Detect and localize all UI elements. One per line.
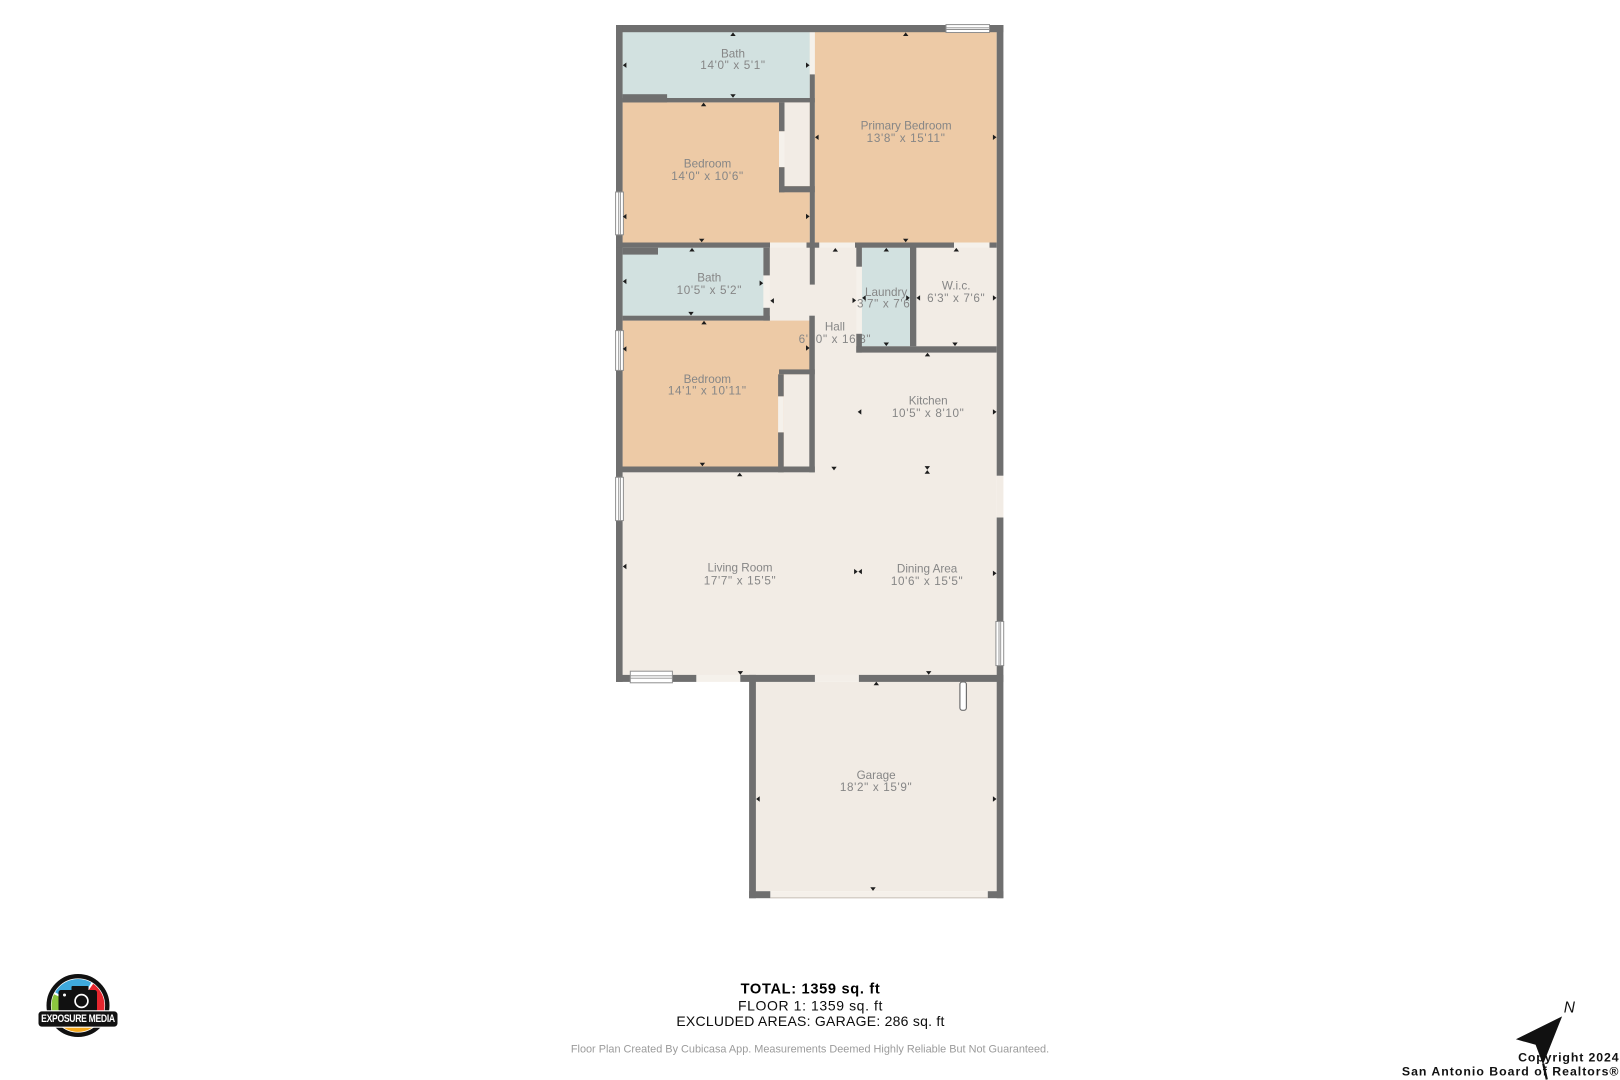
- svg-text:Copyright 2024: Copyright 2024: [1518, 1051, 1619, 1065]
- svg-text:Primary Bedroom: Primary Bedroom: [861, 120, 952, 133]
- svg-text:10'5" x 5'2": 10'5" x 5'2": [677, 284, 742, 297]
- svg-text:10'6" x 15'5": 10'6" x 15'5": [891, 575, 964, 588]
- svg-text:Bedroom: Bedroom: [684, 158, 731, 171]
- svg-text:14'1" x 10'11": 14'1" x 10'11": [668, 385, 747, 398]
- svg-text:N: N: [1564, 999, 1576, 1016]
- svg-text:14'0" x 5'1": 14'0" x 5'1": [700, 59, 765, 72]
- svg-text:FLOOR 1: 1359 sq. ft: FLOOR 1: 1359 sq. ft: [738, 998, 883, 1014]
- svg-text:14'0" x 10'6": 14'0" x 10'6": [671, 170, 744, 183]
- svg-text:Floor Plan Created By Cubicasa: Floor Plan Created By Cubicasa App. Meas…: [571, 1044, 1049, 1056]
- svg-text:Dining Area: Dining Area: [897, 562, 958, 575]
- svg-text:San Antonio Board of Realtors®: San Antonio Board of Realtors®: [1402, 1065, 1620, 1079]
- svg-text:13'8" x 15'11": 13'8" x 15'11": [867, 132, 946, 145]
- svg-text:Bath: Bath: [697, 272, 721, 285]
- svg-text:18'2" x 15'9": 18'2" x 15'9": [840, 781, 913, 794]
- svg-text:TOTAL: 1359 sq. ft: TOTAL: 1359 sq. ft: [741, 982, 881, 998]
- svg-text:17'7" x 15'5": 17'7" x 15'5": [704, 575, 777, 588]
- svg-text:6'3" x 7'6": 6'3" x 7'6": [927, 292, 985, 305]
- svg-text:Living Room: Living Room: [708, 562, 773, 575]
- svg-text:EXPOSURE MEDIA: EXPOSURE MEDIA: [41, 1013, 115, 1025]
- svg-text:Kitchen: Kitchen: [909, 394, 948, 407]
- svg-text:EXCLUDED AREAS: GARAGE: 286 sq: EXCLUDED AREAS: GARAGE: 286 sq. ft: [676, 1013, 944, 1029]
- svg-text:W.i.c.: W.i.c.: [942, 279, 971, 292]
- svg-text:10'5" x 8'10": 10'5" x 8'10": [892, 407, 965, 420]
- svg-text:Hall: Hall: [825, 321, 845, 334]
- svg-text:Garage: Garage: [857, 769, 896, 782]
